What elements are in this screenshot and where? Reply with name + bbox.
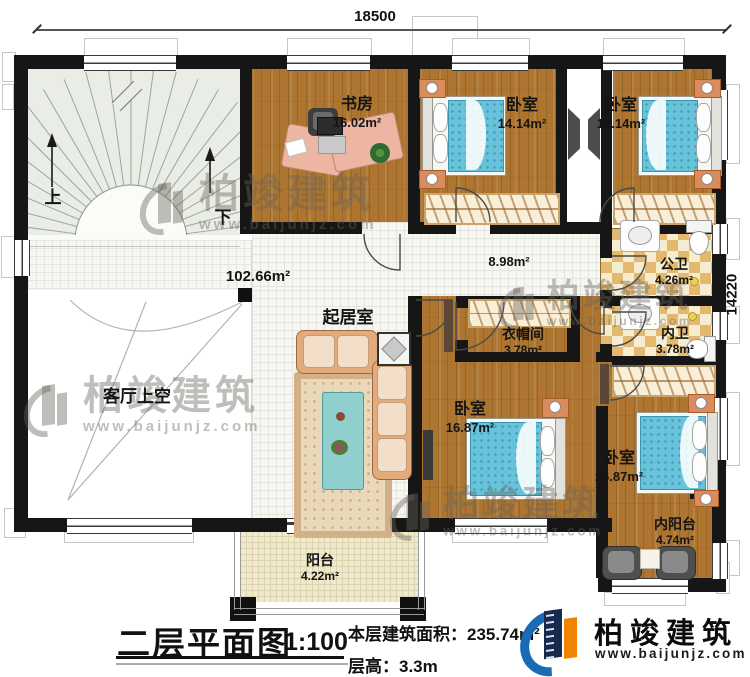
room-label-balcony: 阳台4.22m² xyxy=(301,552,339,583)
dimension-line-top xyxy=(37,29,727,31)
floor-height-value: 3.3m xyxy=(399,657,438,676)
stairs-down-label: 下 xyxy=(215,208,232,228)
floor-height-label: 层高： xyxy=(348,657,399,676)
room-label-bedroom1: 卧室14.14m² xyxy=(498,97,546,131)
room-label-inner-balcony: 内阳台4.74m² xyxy=(654,516,696,547)
dimension-right-value: 14220 xyxy=(724,267,741,323)
floor-height-row: 层高：3.3m xyxy=(348,652,438,677)
room-label-bedroom3: 卧室16.87m² xyxy=(446,401,494,435)
room-label-cloakroom: 衣帽间3.78m² xyxy=(502,326,544,357)
room-label-bedroom2: 卧室14.14m² xyxy=(597,97,645,131)
hall-area-label: 102.66m² xyxy=(226,268,290,286)
floor-area-row: 本层建筑面积：235.74m² xyxy=(348,620,540,645)
room-label-bedroom4: 卧室16.87m² xyxy=(595,450,643,484)
floor-area-label: 本层建筑面积： xyxy=(348,625,467,644)
room-label-inner-bath: 内卫3.78m² xyxy=(656,325,694,356)
room-label-living-void: 客厅上空 xyxy=(103,387,171,407)
floor-plan-canvas: 柏竣建筑 www.baijunjz.com 柏竣建筑 www.baijunjz.… xyxy=(0,0,750,677)
brand-logo: 柏竣建筑 www.baijunjz.com xyxy=(516,598,750,672)
room-label-public-bath: 公卫4.26m² xyxy=(655,256,693,287)
brand-logo-icon xyxy=(522,606,584,664)
plan-scale: 1:100 xyxy=(284,628,348,657)
corridor-area-label: 8.98m² xyxy=(488,254,529,269)
stairs-up-label: 上 xyxy=(45,188,62,208)
door-leaf xyxy=(600,364,609,404)
door-leaf xyxy=(444,300,453,352)
room-label-study: 书房16.02m² xyxy=(333,96,381,130)
room-label-family-room: 起居室 xyxy=(323,308,374,328)
brand-url: www.baijunjz.com xyxy=(595,646,747,661)
dimension-top-value: 18500 xyxy=(354,8,396,25)
title-underline xyxy=(116,663,348,665)
